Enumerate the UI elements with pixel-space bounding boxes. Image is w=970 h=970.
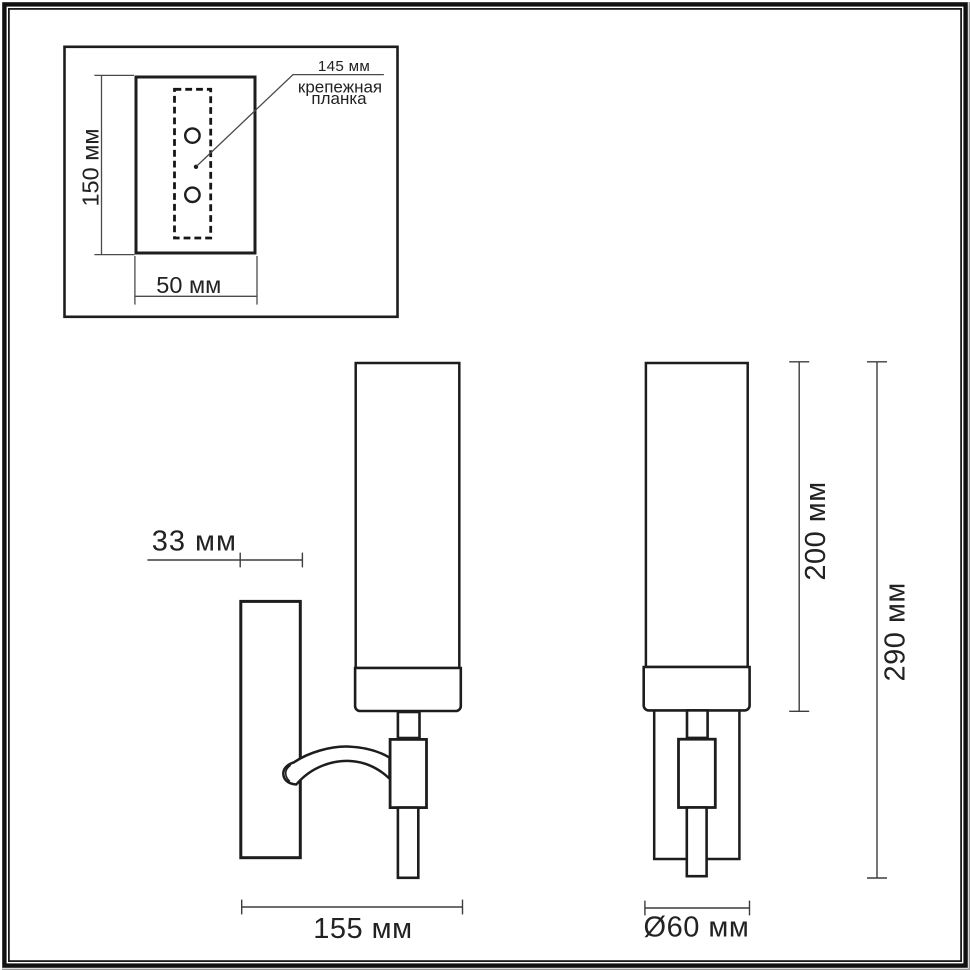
svg-text:145 мм: 145 мм bbox=[318, 58, 370, 75]
svg-text:150 мм: 150 мм bbox=[78, 128, 104, 206]
svg-text:планка: планка bbox=[311, 89, 367, 108]
svg-text:50 мм: 50 мм bbox=[156, 272, 221, 298]
svg-text:33 мм: 33 мм bbox=[152, 526, 237, 558]
svg-text:290 мм: 290 мм bbox=[880, 582, 912, 681]
svg-text:Ø60 мм: Ø60 мм bbox=[644, 912, 750, 944]
svg-text:200 мм: 200 мм bbox=[800, 481, 832, 580]
svg-text:155 мм: 155 мм bbox=[313, 913, 412, 945]
